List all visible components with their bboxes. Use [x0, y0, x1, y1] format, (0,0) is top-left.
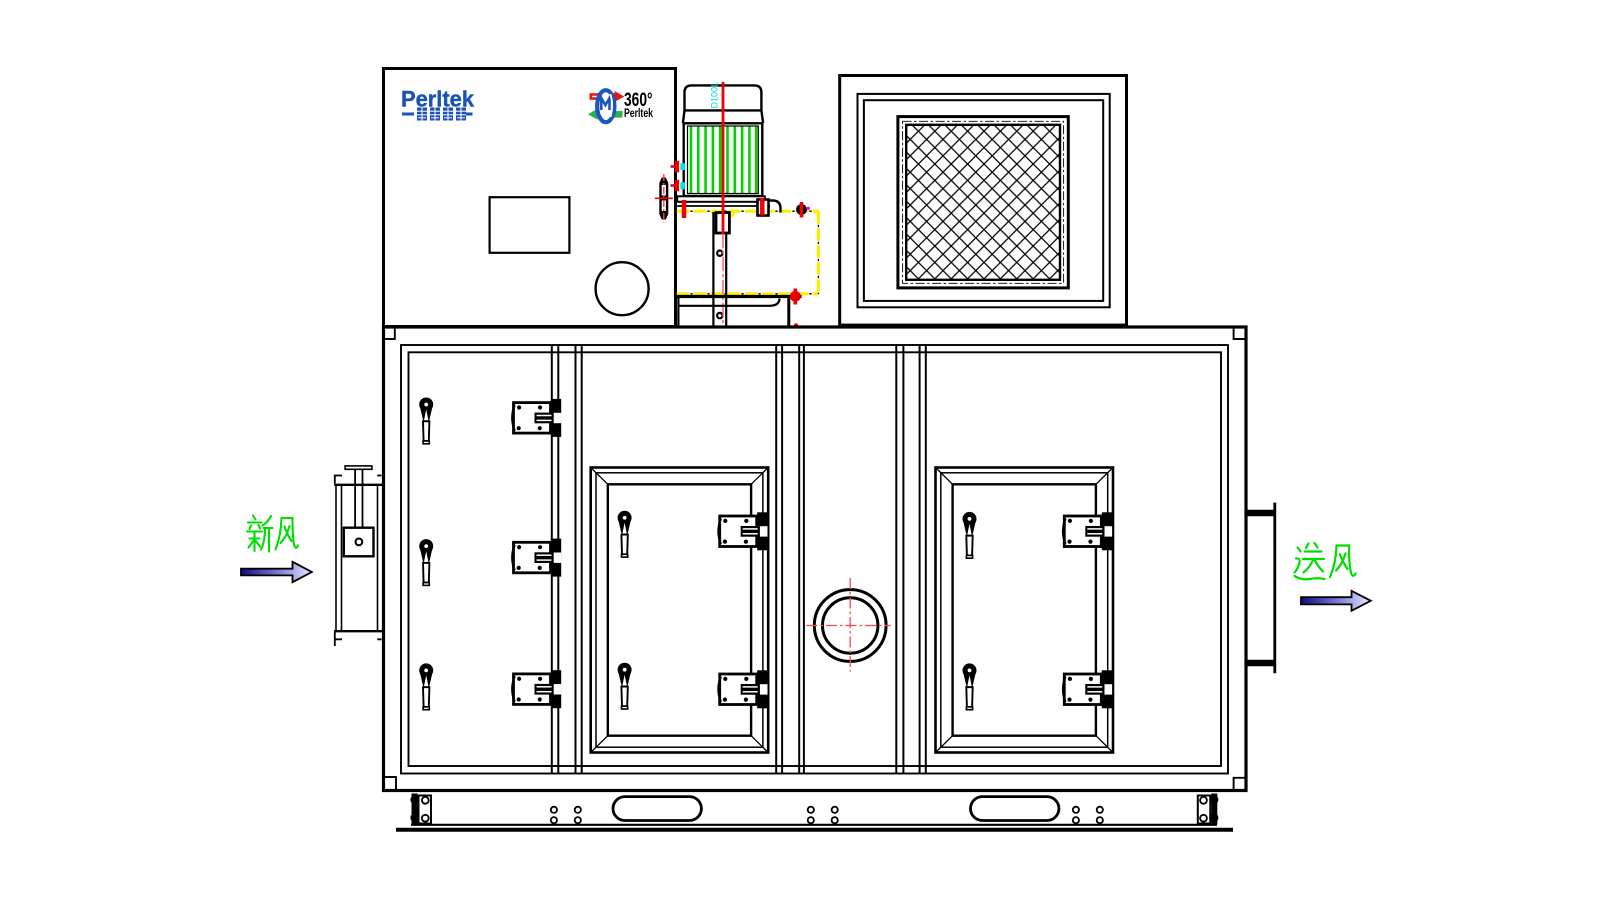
svg-text:Perltek: Perltek [624, 108, 653, 120]
svg-text:D100L: D100L [710, 82, 720, 109]
